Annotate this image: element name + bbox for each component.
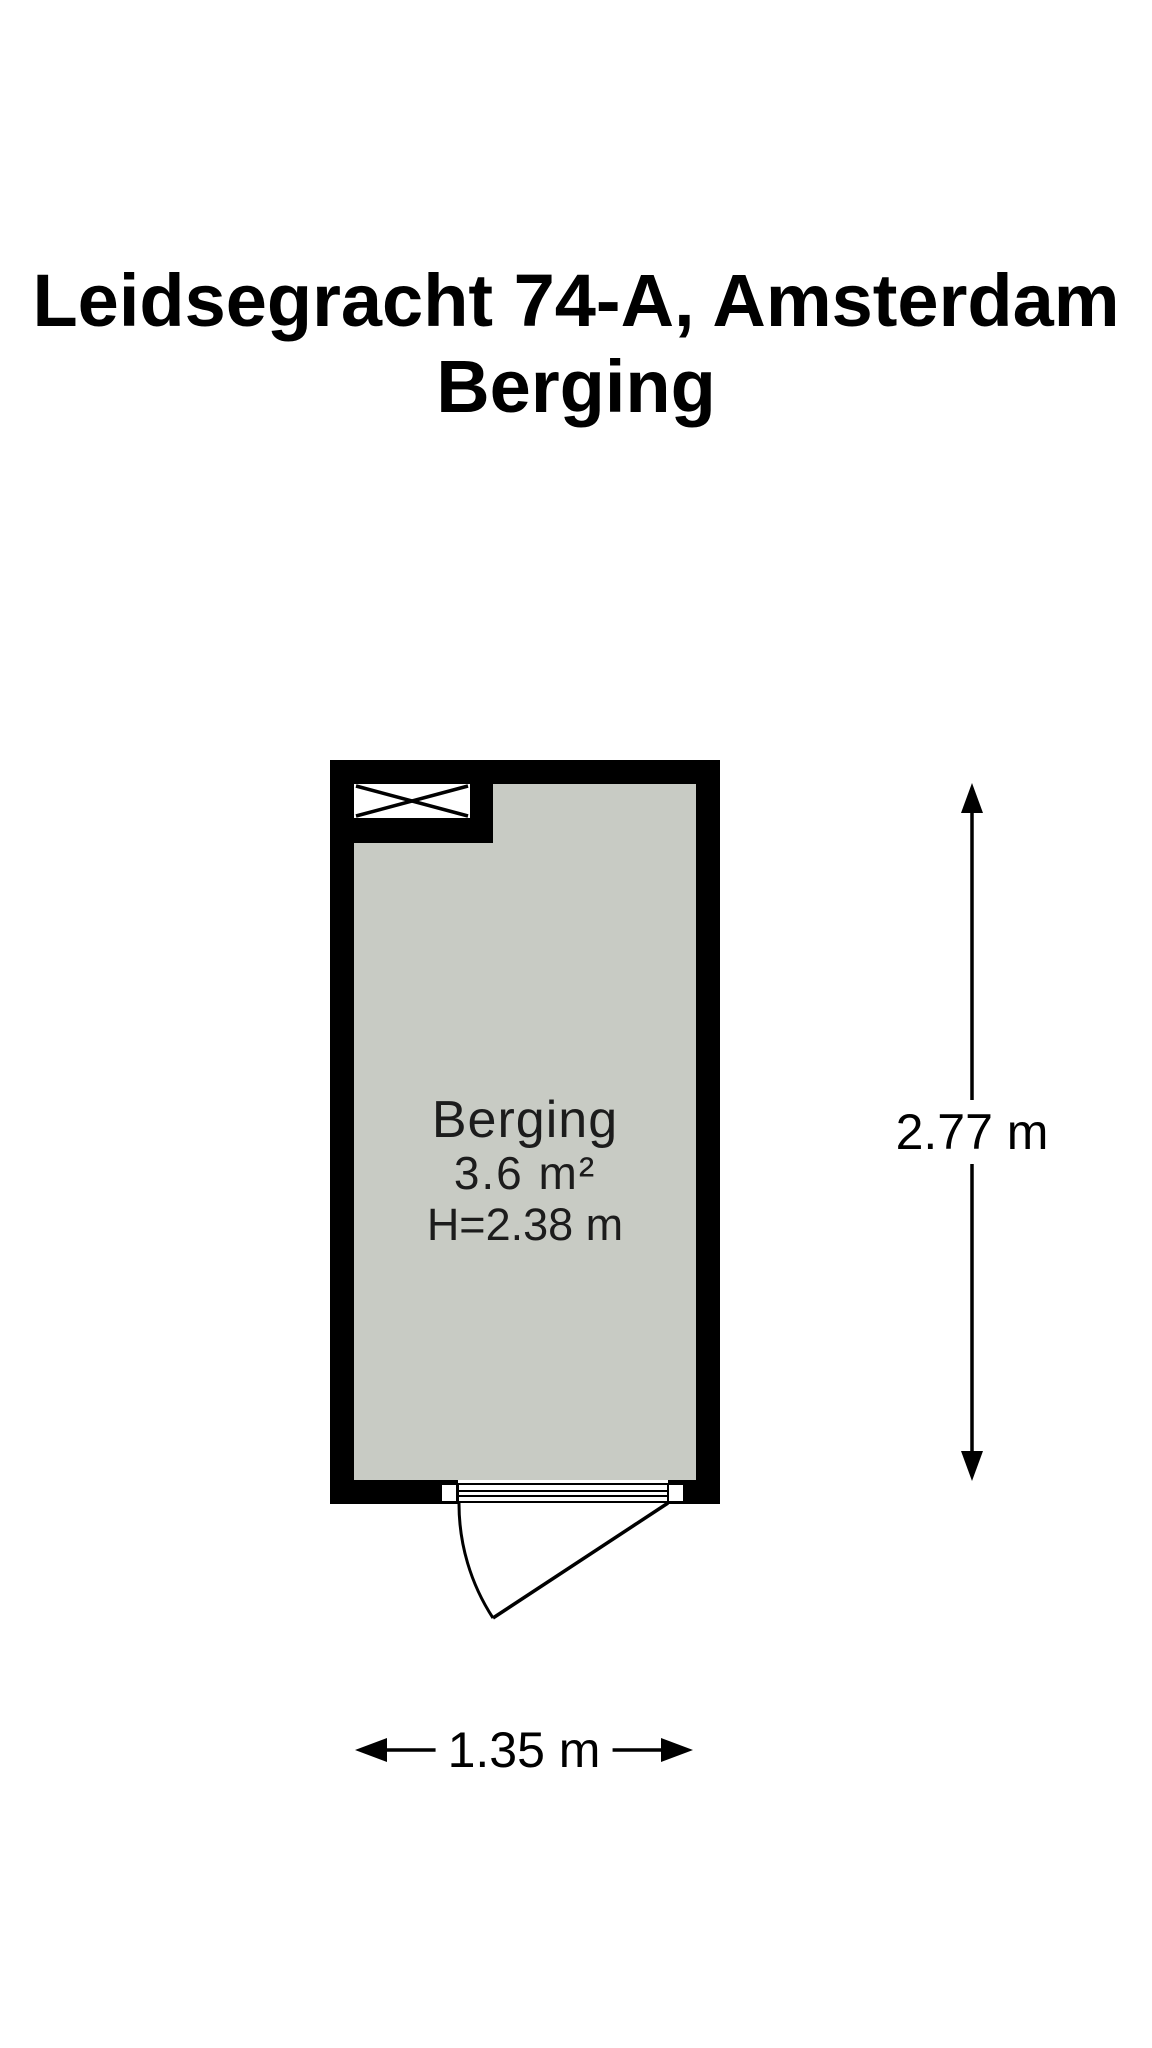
page-title: Leidsegracht 74-A, Amsterdam Berging — [0, 258, 1152, 430]
dimension-label-height: 2.77 m — [888, 1100, 1057, 1164]
door-threshold — [457, 1483, 669, 1503]
door-post-left — [440, 1483, 458, 1503]
door-post-right — [667, 1483, 685, 1503]
threshold-line — [459, 1495, 667, 1497]
room-area-label: 3.6 m² — [354, 1148, 696, 1198]
shaft-crossed-box — [354, 784, 470, 818]
page-title-room: Berging — [0, 344, 1152, 430]
threshold-line — [459, 1490, 667, 1492]
floorplan-page: Leidsegracht 74-A, Amsterdam Berging — [0, 0, 1152, 2048]
room-height-label: H=2.38 m — [354, 1198, 696, 1251]
door-swing-icon — [459, 1503, 668, 1618]
dimension-label-width: 1.35 m — [436, 1721, 613, 1779]
page-title-address: Leidsegracht 74-A, Amsterdam — [0, 258, 1152, 344]
room-label: Berging 3.6 m² H=2.38 m — [354, 1092, 696, 1251]
room-name-label: Berging — [354, 1092, 696, 1148]
